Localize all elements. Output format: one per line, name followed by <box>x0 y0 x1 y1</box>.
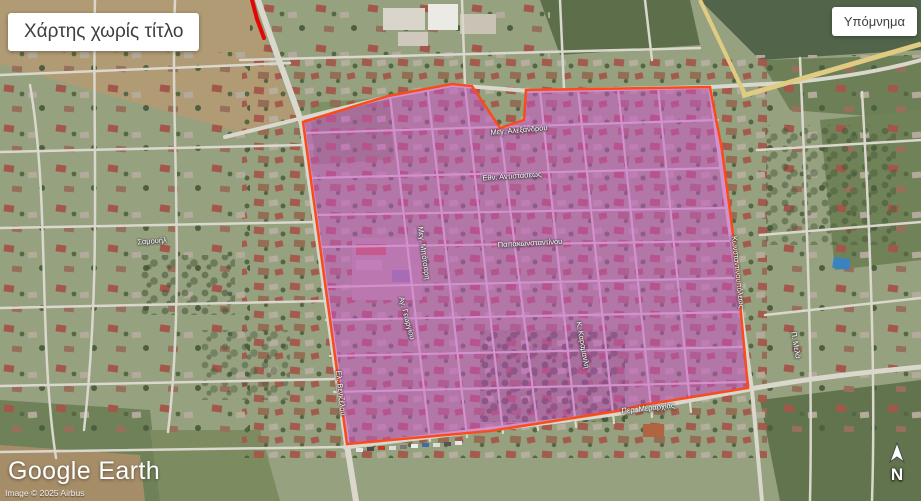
compass[interactable]: N <box>888 442 906 483</box>
street-label: Κωνσταντινουπόλεως <box>730 235 747 308</box>
street-labels: ΣαμουήλΜεγ. ΑλεξάνδρουΕθν. ΑντιστάσεωςΠα… <box>0 0 921 501</box>
map-viewport[interactable]: ΣαμουήλΜεγ. ΑλεξάνδρουΕθν. ΑντιστάσεωςΠα… <box>0 0 921 501</box>
street-label: Αγ. Γεωργίου <box>397 296 417 341</box>
street-label: Μεγ. Αλεξάνδρου <box>490 123 548 137</box>
street-label: Ελ. Βενιζέλου <box>334 370 348 416</box>
street-label: Μεγ. Μπότσαρη <box>416 226 432 280</box>
street-label: Παπακωνσταντίνου <box>497 237 562 249</box>
compass-north-label: N <box>891 466 903 483</box>
legend-button[interactable]: Υπόμνημα <box>832 7 917 36</box>
map-title-box[interactable]: Χάρτης χωρίς τίτλο <box>8 13 199 51</box>
google-earth-logo: Google Earth <box>8 457 160 486</box>
street-label: Εθν. Αντιστάσεως <box>482 169 542 182</box>
street-label: Κ. Καραμανλή <box>574 321 591 369</box>
street-label: Σαμουήλ <box>137 235 167 246</box>
imagery-copyright: Image © 2025 Airbus <box>5 488 85 498</box>
street-label: Π. Μελά <box>789 331 803 359</box>
street-label: Περ. Μεραρχίας <box>621 401 675 416</box>
